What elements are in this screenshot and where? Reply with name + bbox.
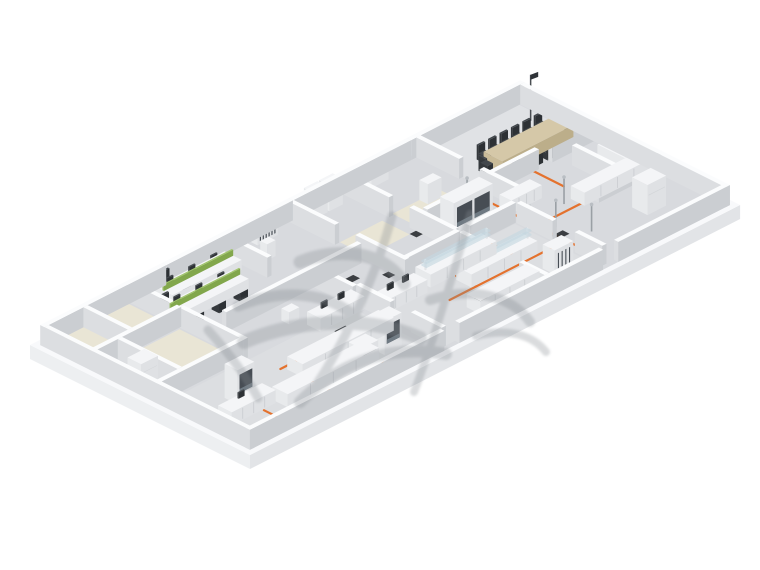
isometric-floorplan-render (0, 0, 760, 570)
refrigerator-cabinet (632, 168, 666, 215)
floorplan-render-page (0, 0, 760, 570)
